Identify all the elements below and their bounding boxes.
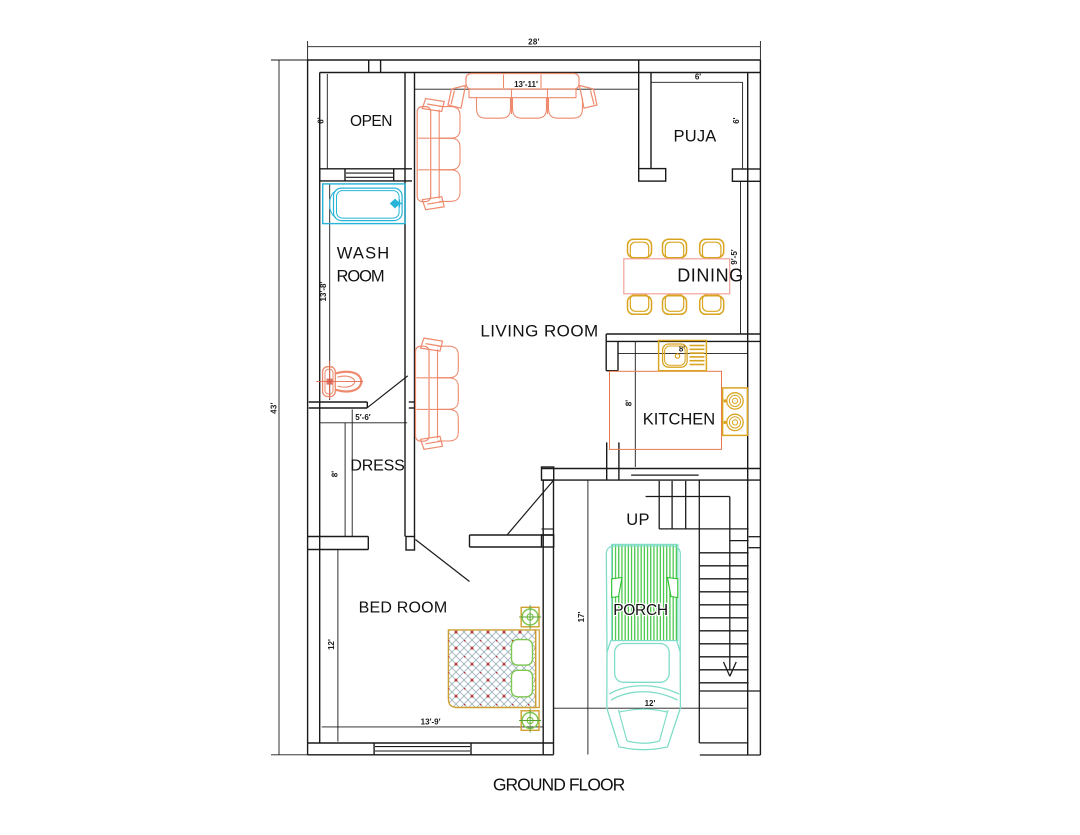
- svg-text:13′-9′: 13′-9′: [421, 718, 441, 727]
- svg-text:KITCHEN: KITCHEN: [643, 411, 715, 429]
- svg-text:ROOM: ROOM: [337, 268, 384, 286]
- svg-text:8': 8': [331, 471, 340, 477]
- svg-text:DRESS: DRESS: [350, 458, 404, 475]
- svg-text:6': 6': [317, 117, 326, 123]
- svg-text:OPEN: OPEN: [350, 113, 392, 130]
- svg-text:BED ROOM: BED ROOM: [359, 600, 448, 617]
- svg-text:13′-11′: 13′-11′: [514, 80, 538, 89]
- svg-text:9′-5′: 9′-5′: [730, 249, 739, 264]
- svg-text:PORCH: PORCH: [613, 602, 667, 619]
- svg-text:6': 6': [732, 117, 741, 123]
- svg-text:6': 6': [695, 73, 701, 82]
- svg-text:5′-6′: 5′-6′: [355, 413, 370, 422]
- svg-text:LIVING ROOM: LIVING ROOM: [480, 322, 598, 341]
- svg-text:UP: UP: [626, 511, 650, 529]
- svg-text:43': 43': [270, 402, 279, 414]
- svg-text:12': 12': [327, 639, 336, 650]
- svg-text:DINING: DINING: [677, 266, 744, 286]
- svg-text:17': 17': [577, 612, 586, 623]
- svg-text:GROUND FLOOR: GROUND FLOOR: [493, 775, 625, 795]
- svg-text:12': 12': [645, 699, 656, 708]
- svg-text:PUJA: PUJA: [674, 128, 717, 146]
- svg-text:WASH: WASH: [337, 245, 391, 263]
- svg-text:28': 28': [528, 38, 540, 47]
- svg-text:8': 8': [625, 400, 634, 406]
